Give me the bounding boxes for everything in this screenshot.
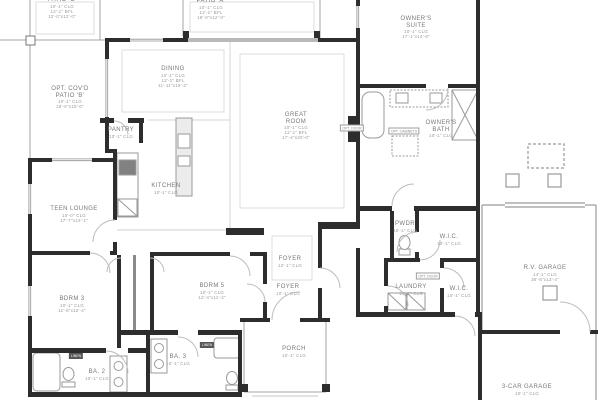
column-post — [543, 286, 557, 300]
ba2-fixtures — [33, 353, 127, 392]
porch-post — [240, 384, 248, 392]
patio-post — [183, 31, 189, 38]
wic-upper-door-arc — [420, 240, 440, 260]
patio-outline-lines — [0, 0, 326, 396]
column-post — [506, 174, 519, 187]
wic-lower-door-arc — [444, 268, 464, 288]
owners-bath-door-arc — [392, 184, 414, 206]
toilet-icon — [227, 372, 238, 385]
teen-lounge-door-arc — [93, 220, 115, 242]
pantry-door-arc — [114, 121, 128, 135]
ba3-door-arc — [178, 337, 198, 357]
garage-lines — [482, 144, 596, 400]
media-niche — [348, 116, 356, 142]
pwdr-toilet-icon — [399, 236, 410, 256]
sink-icon — [114, 378, 123, 387]
column-post — [548, 174, 561, 187]
patio-post — [314, 31, 320, 38]
tub-icon — [214, 338, 240, 358]
bdrm5-door-arc — [230, 256, 250, 276]
sink-icon — [114, 362, 123, 371]
windows-layer — [28, 6, 360, 316]
sink-icon — [430, 93, 442, 103]
toilet-icon — [226, 385, 238, 390]
opt-cabinets-dashed — [392, 136, 418, 156]
ba3-fixtures — [151, 338, 240, 390]
kitchen-island — [176, 118, 192, 196]
garage-service-door-arc — [455, 316, 475, 336]
wall-oven-icon — [119, 160, 136, 175]
foyer-hall-door-arc — [320, 268, 340, 288]
bdrm5-foyer-door-arc — [247, 284, 265, 302]
sink-icon — [396, 93, 408, 103]
fixtures-layer — [33, 90, 478, 392]
tub-icon — [33, 353, 60, 391]
owners-bath-fixtures — [362, 90, 478, 156]
garage-connect-door-arc — [560, 302, 590, 332]
toilet-icon — [62, 382, 75, 387]
walls-layer — [28, 0, 598, 400]
front-door-arc — [272, 292, 300, 320]
opt-storage-dashed — [528, 144, 564, 168]
floor-plan-canvas: PATIO 'C'10'-1" CLG12'-1" BFL12'-0"x12'-… — [0, 0, 600, 400]
floor-plan-drawing — [0, 0, 600, 400]
porch-post — [322, 384, 330, 392]
sink-icon — [155, 344, 164, 353]
tub-icon — [362, 92, 384, 138]
toilet-icon — [63, 368, 74, 381]
laundry-appliances — [388, 293, 425, 310]
sink-icon — [155, 360, 164, 369]
kitchen-counter — [117, 153, 138, 217]
